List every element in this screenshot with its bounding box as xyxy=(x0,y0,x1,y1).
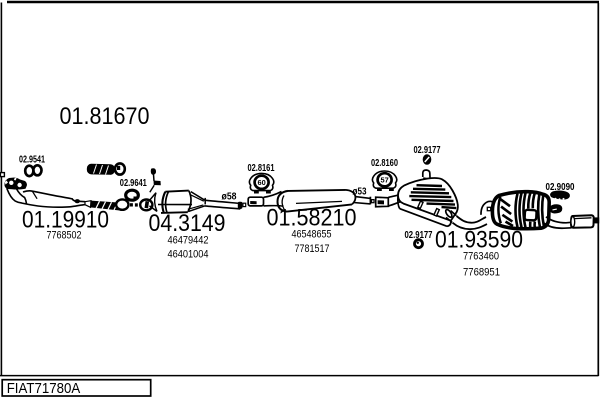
svg-text:46548655: 46548655 xyxy=(292,229,332,241)
svg-text:02.9641: 02.9641 xyxy=(120,177,147,189)
svg-text:FIAT71780A: FIAT71780A xyxy=(7,380,81,397)
svg-text:7781517: 7781517 xyxy=(295,243,330,255)
svg-text:02.8161: 02.8161 xyxy=(248,162,275,174)
svg-text:46479442: 46479442 xyxy=(168,235,209,247)
svg-text:7768951: 7768951 xyxy=(463,267,500,279)
svg-text:57: 57 xyxy=(380,175,388,184)
svg-text:46401004: 46401004 xyxy=(168,249,209,261)
svg-text:04.3149: 04.3149 xyxy=(149,210,226,237)
svg-text:02.9177: 02.9177 xyxy=(414,144,441,156)
svg-text:01.58210: 01.58210 xyxy=(267,205,357,232)
svg-text:7768502: 7768502 xyxy=(47,230,82,242)
svg-text:02.8160: 02.8160 xyxy=(371,157,398,169)
svg-text:01.93590: 01.93590 xyxy=(435,227,523,254)
svg-text:ø53: ø53 xyxy=(353,185,367,197)
svg-text:02.9541: 02.9541 xyxy=(19,154,45,166)
svg-text:7763460: 7763460 xyxy=(463,251,499,263)
svg-text:ø58: ø58 xyxy=(222,191,237,203)
svg-text:01.81670: 01.81670 xyxy=(60,103,150,130)
svg-text:60: 60 xyxy=(257,178,265,187)
